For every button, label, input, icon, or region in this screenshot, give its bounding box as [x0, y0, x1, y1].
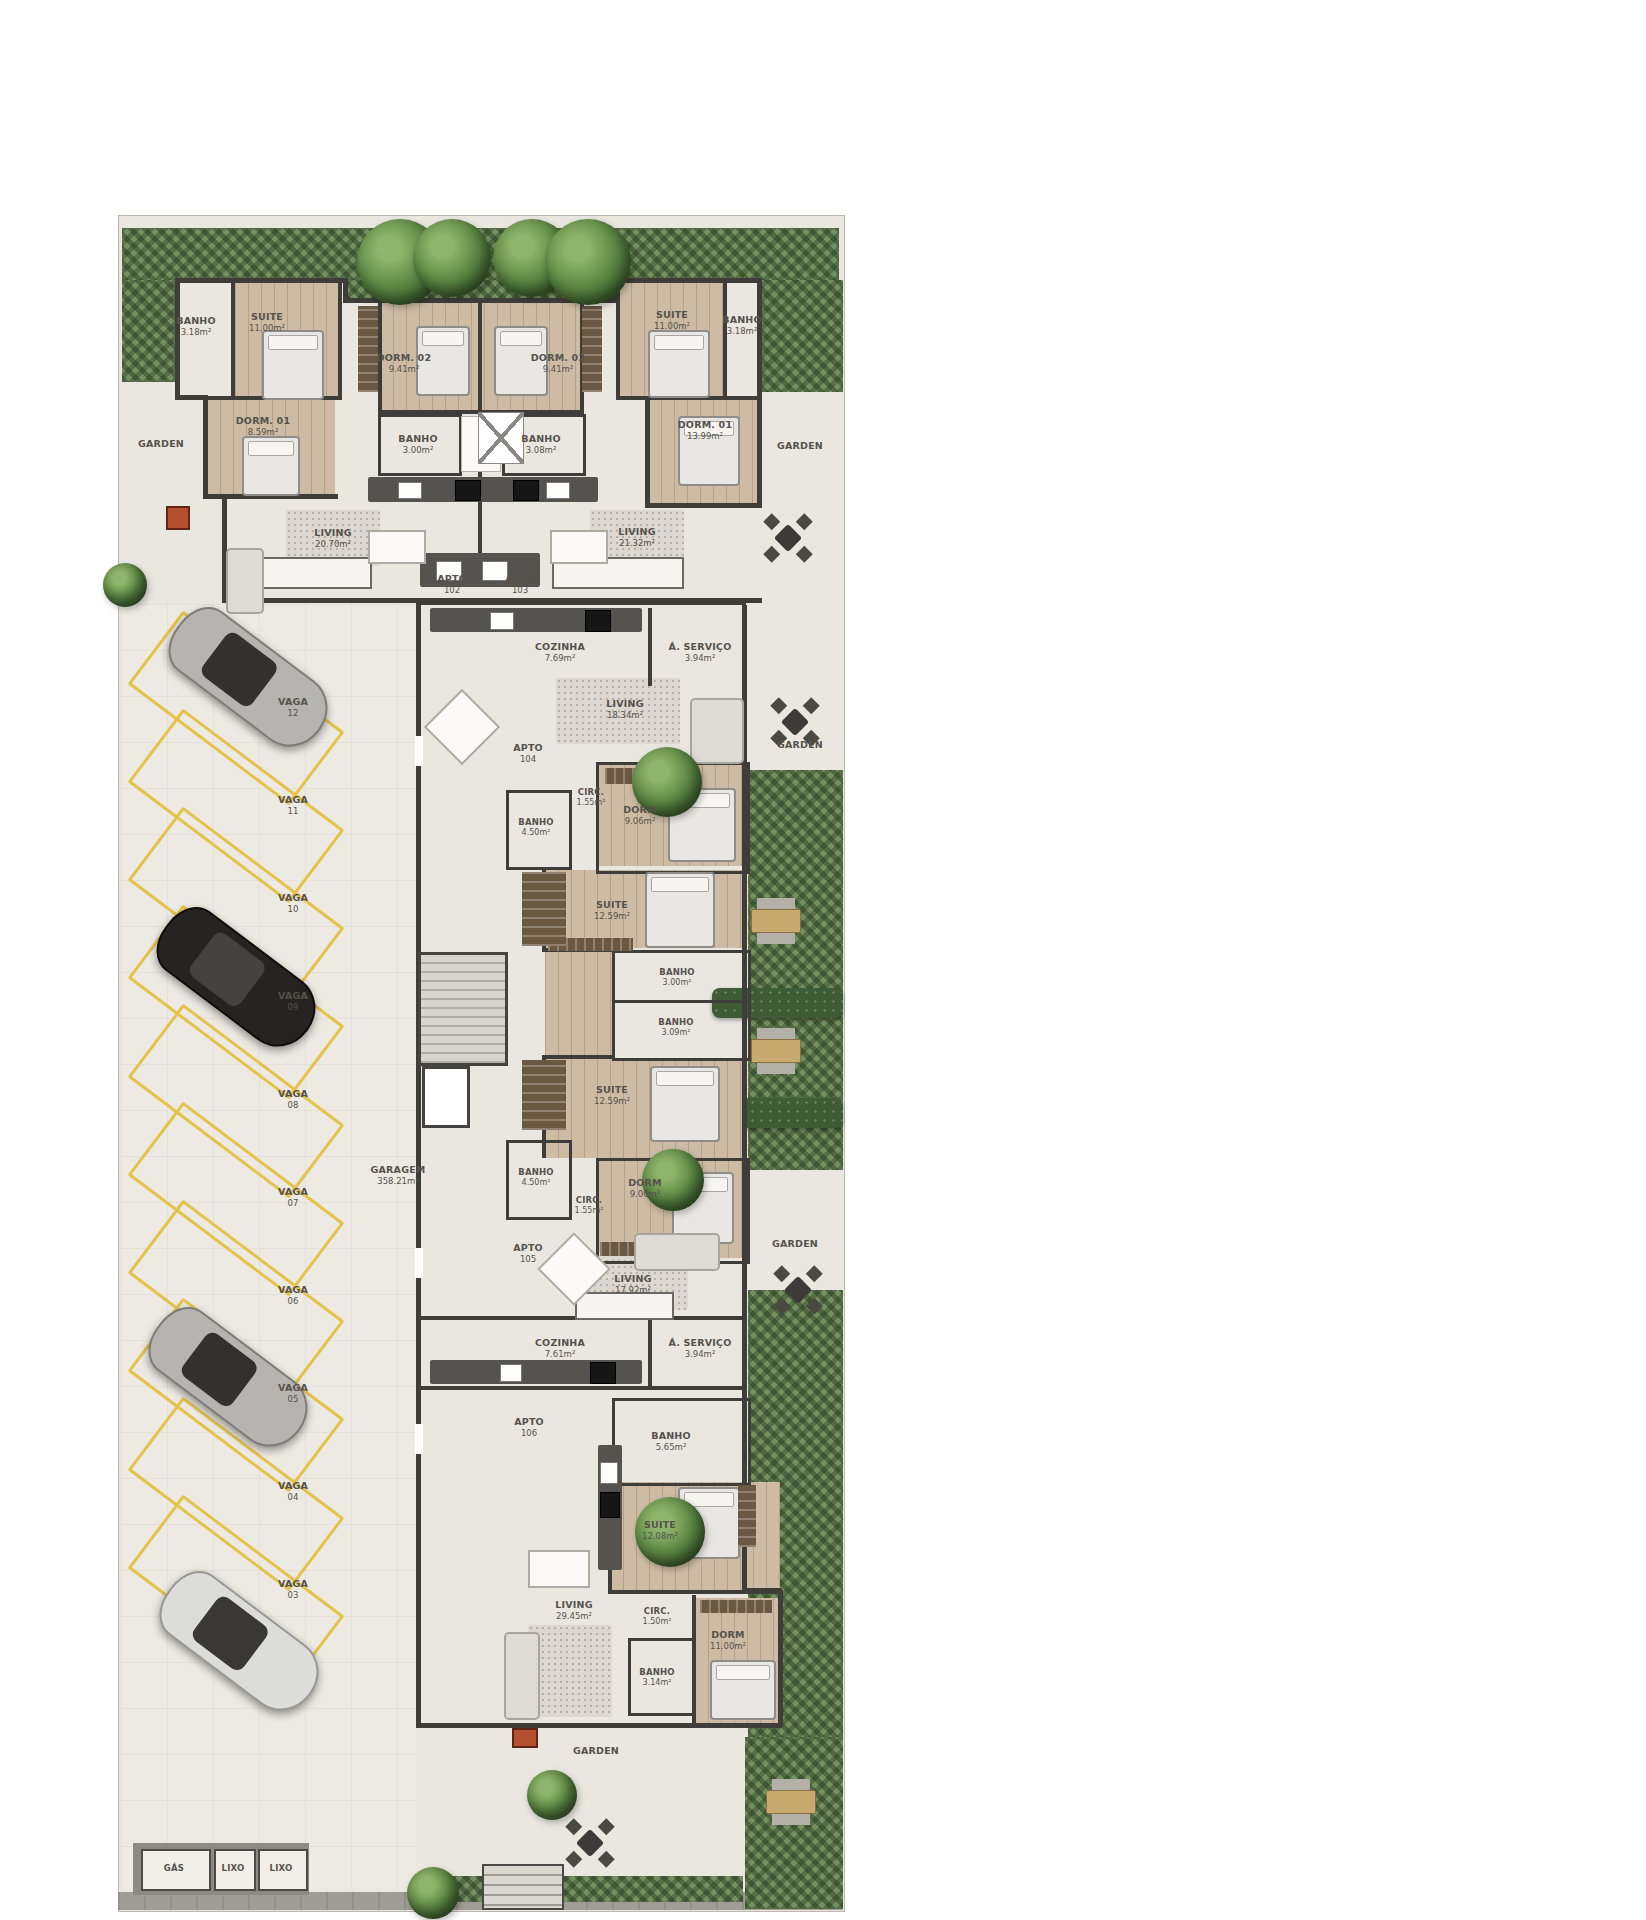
vaga-number: 07 [278, 1198, 308, 1209]
room-name: BANHO [659, 967, 695, 978]
room-name: SUITE [249, 311, 285, 323]
lixo-label-1: LIXO [222, 1863, 245, 1874]
room-name: BANHO [176, 315, 216, 327]
wall [612, 1000, 745, 1003]
vaga-label-10: VAGA10 [278, 892, 308, 915]
dining-table-106 [528, 1550, 590, 1588]
room-area: 11.00m² [654, 321, 690, 332]
room-area: 13.99m² [678, 431, 732, 442]
staircase [418, 952, 508, 1066]
floor-suite-104b [545, 948, 612, 1055]
room-name: DORM. 02 [377, 352, 431, 364]
tree [103, 563, 147, 607]
wall [723, 278, 727, 398]
apto-number: 104 [513, 754, 543, 765]
elevator-shaft [422, 1066, 470, 1128]
room-label-circ-106: CIRC.1.50m² [643, 1606, 672, 1627]
room-label-banho2-105: BANHO3.09m² [658, 1017, 694, 1038]
room-label-suite-103: SUITE11.00m² [654, 309, 690, 332]
room-area: 3.94m² [668, 1349, 731, 1360]
room-name: LIVING [555, 1599, 592, 1611]
room-label-banho-104: BANHO4.50m² [518, 817, 554, 838]
vaga-name: VAGA [278, 990, 308, 1002]
room-name: LIVING [314, 527, 351, 539]
apto-number: 103 [505, 585, 535, 596]
garden-bottom-strip [430, 1876, 743, 1902]
room-label-living-102: LIVING20.70m² [314, 527, 351, 550]
room-label-suite-105: SUITE12.59m² [594, 1084, 630, 1107]
wall [478, 302, 482, 414]
wall [616, 278, 620, 398]
sink [600, 1462, 618, 1484]
apto-number: 102 [437, 585, 467, 596]
garden-name: GARDEN [138, 438, 184, 450]
vaga-number: 10 [278, 904, 308, 915]
room-area: 3.18m² [176, 327, 216, 338]
vaga-name: VAGA [278, 696, 308, 708]
sofa-106 [504, 1632, 540, 1720]
room-area: 7.69m² [535, 653, 585, 664]
utility-name: LIXO [270, 1863, 293, 1874]
vaga-label-05: VAGA05 [278, 1382, 308, 1405]
bed-suite-104 [645, 872, 715, 948]
utility-name: LIXO [222, 1863, 245, 1874]
vaga-label-04: VAGA04 [278, 1480, 308, 1503]
room-label-servico-105: Á. SERVIÇO3.94m² [668, 1337, 731, 1360]
room-label-cozinha-105: COZINHA7.61m² [535, 1337, 585, 1360]
room-name: LIVING [614, 1273, 651, 1285]
room-area: 3.00m² [659, 977, 695, 987]
bed-dorm1-102 [242, 436, 300, 496]
apto-number: 105 [513, 1254, 543, 1265]
vaga-name: VAGA [278, 794, 308, 806]
room-label-dorm1-103: DORM. 0113.99m² [678, 419, 732, 442]
room-label-dorm-106: DORM11.00m² [710, 1629, 746, 1652]
wardrobe [700, 1600, 772, 1613]
room-name: SUITE [594, 1084, 630, 1096]
wardrobe [582, 306, 602, 392]
garden-name: GARDEN [777, 440, 823, 452]
sofa-104 [690, 698, 744, 764]
room-area: 7.61m² [535, 1349, 585, 1360]
room-name: SUITE [642, 1519, 678, 1531]
room-name: SUITE [654, 309, 690, 321]
room-name: BANHO [722, 314, 762, 326]
wall [645, 503, 762, 508]
room-label-banho2-104: BANHO3.00m² [659, 967, 695, 988]
tree [527, 1770, 577, 1820]
room-name: BANHO [398, 433, 438, 445]
vaga-label-12: VAGA12 [278, 696, 308, 719]
bed-suite-102 [262, 330, 324, 400]
room-label-banho2-106: BANHO3.14m² [639, 1667, 675, 1688]
room-label-circ-104: CIRC.1.55m² [577, 787, 606, 808]
room-label-suite-106: SUITE12.08m² [642, 1519, 678, 1542]
tree [407, 1867, 459, 1919]
apto-label-103: APTO103 [505, 573, 535, 596]
closet [522, 1060, 566, 1130]
garden-top-left [122, 280, 177, 382]
utility-box [512, 1728, 538, 1748]
room-area: 17.92m² [614, 1285, 651, 1296]
utility-box [166, 506, 190, 530]
room-area: 4.50m² [518, 827, 554, 837]
wall [338, 278, 342, 398]
vaga-label-06: VAGA06 [278, 1284, 308, 1307]
wall [203, 398, 208, 498]
room-label-dorm-104: DORM9.06m² [623, 804, 657, 827]
sofa-105 [634, 1233, 720, 1271]
wall [614, 278, 762, 283]
room-area: 3.14m² [639, 1677, 675, 1687]
room-area: 29.45m² [555, 1611, 592, 1622]
room-name: BANHO [658, 1017, 694, 1028]
apto-name: APTO [505, 573, 535, 585]
wardrobe [738, 1485, 756, 1547]
picnic-table [766, 1790, 816, 1814]
room-area: 20.70m² [314, 539, 351, 550]
utility-name: GÁS [164, 1863, 184, 1874]
gas-label: GÁS [164, 1863, 184, 1874]
apto-name: APTO [437, 573, 467, 585]
dining-table-102 [368, 530, 426, 564]
sofa-102 [226, 548, 264, 614]
sink [500, 1364, 522, 1382]
apto-number: 106 [514, 1428, 544, 1439]
room-name: BANHO [518, 1167, 554, 1178]
room-label-living-103: LIVING21.32m² [618, 526, 655, 549]
room-label-banho-102: BANHO3.00m² [398, 433, 438, 456]
apto-name: APTO [513, 1242, 543, 1254]
room-label-living-105: LIVING17.92m² [614, 1273, 651, 1296]
rug-living-106 [528, 1625, 612, 1717]
room-name: Á. SERVIÇO [668, 1337, 731, 1349]
garden-name: GARDEN [573, 1745, 619, 1757]
apto-label-102: APTO102 [437, 573, 467, 596]
garden-name: GARDEN [772, 1238, 818, 1250]
room-label-banho-106: BANHO5.65m² [651, 1430, 691, 1453]
room-label-living-104: LIVING18.34m² [606, 698, 643, 721]
wall [416, 600, 746, 605]
room-label-circ-105: CIRC.1.55m² [575, 1195, 604, 1216]
wardrobe [358, 306, 378, 392]
picnic-table [751, 909, 801, 933]
wall [175, 278, 180, 400]
room-area: 12.59m² [594, 911, 630, 922]
room-name: BANHO [639, 1667, 675, 1678]
garden-name: GARDEN [777, 739, 823, 751]
garage-name: GARAGEM [371, 1164, 426, 1176]
room-name: BANHO [521, 433, 561, 445]
floor-plan: BANHO3.18m² SUITE11.00m² DORM. 029.41m² … [0, 0, 1646, 1920]
room-area: 1.55m² [575, 1205, 604, 1215]
room-name: DORM. 01 [236, 415, 290, 427]
entry-double-door [478, 412, 524, 464]
vaga-number: 09 [278, 1002, 308, 1013]
room-label-banho-105: BANHO4.50m² [518, 1167, 554, 1188]
room-label-living-106: LIVING29.45m² [555, 1599, 592, 1622]
room-area: 9.06m² [623, 816, 657, 827]
room-area: 9.41m² [531, 364, 585, 375]
room-name: BANHO [518, 817, 554, 828]
vaga-number: 12 [278, 708, 308, 719]
room-label-suite-102: SUITE11.00m² [249, 311, 285, 334]
room-label-servico-104: Á. SERVIÇO3.94m² [668, 641, 731, 664]
vaga-name: VAGA [278, 1088, 308, 1100]
tree [413, 219, 491, 297]
room-area: 3.00m² [398, 445, 438, 456]
room-name: DORM. 02 [531, 352, 585, 364]
garden-bottom-right [745, 1737, 843, 1909]
apto-label-104: APTO104 [513, 742, 543, 765]
wall [645, 398, 650, 508]
room-area: 12.08m² [642, 1531, 678, 1542]
room-name: SUITE [594, 899, 630, 911]
room-area: 8.59m² [236, 427, 290, 438]
bed-suite-105 [650, 1066, 720, 1142]
room-label-banho-suite-103: BANHO3.18m² [722, 314, 762, 337]
vaga-number: 06 [278, 1296, 308, 1307]
room-name: DORM [623, 804, 657, 816]
room-area: 9.41m² [377, 364, 431, 375]
garden-top-right [762, 280, 843, 392]
vaga-number: 08 [278, 1100, 308, 1111]
vaga-name: VAGA [278, 1186, 308, 1198]
wall [648, 608, 652, 686]
closet [522, 872, 566, 946]
room-area: 1.55m² [577, 797, 606, 807]
wall [648, 1320, 652, 1386]
vaga-label-07: VAGA07 [278, 1186, 308, 1209]
room-area: 3.09m² [658, 1027, 694, 1037]
vaga-name: VAGA [278, 1284, 308, 1296]
wall [757, 278, 762, 508]
garden-label-bottom: GARDEN [573, 1745, 619, 1757]
apto-name: APTO [514, 1416, 544, 1428]
room-label-dorm1-102: DORM. 018.59m² [236, 415, 290, 438]
wall [608, 1590, 782, 1594]
vaga-label-09: VAGA09 [278, 990, 308, 1013]
cooktop [455, 480, 481, 501]
island-105 [575, 1292, 674, 1320]
vaga-label-03: VAGA03 [278, 1578, 308, 1601]
room-area: 12.59m² [594, 1096, 630, 1107]
garage-label: GARAGEM358.21m² [371, 1164, 426, 1187]
room-area: 1.50m² [643, 1616, 672, 1626]
apto-label-105: APTO105 [513, 1242, 543, 1265]
wall [778, 1590, 783, 1725]
room-name: CIRC. [577, 787, 606, 798]
room-name: LIVING [618, 526, 655, 538]
vaga-name: VAGA [278, 1382, 308, 1394]
vaga-number: 11 [278, 806, 308, 817]
room-name: Á. SERVIÇO [668, 641, 731, 653]
room-area: 3.94m² [668, 653, 731, 664]
room-area: 21.32m² [618, 538, 655, 549]
room-area: 4.50m² [518, 1177, 554, 1187]
lixo-label-2: LIXO [270, 1863, 293, 1874]
room-name: CIRC. [643, 1606, 672, 1617]
room-label-banho-suite-102: BANHO3.18m² [176, 315, 216, 338]
picnic-table [751, 1039, 801, 1063]
room-name: DORM. 01 [678, 419, 732, 431]
vaga-label-11: VAGA11 [278, 794, 308, 817]
room-label-cozinha-104: COZINHA7.69m² [535, 641, 585, 664]
room-area: 5.65m² [651, 1442, 691, 1453]
door-gap-104 [415, 736, 423, 766]
room-label-dorm-105: DORM9.00m² [628, 1177, 662, 1200]
room-name: DORM [710, 1629, 746, 1641]
dining-table-103 [550, 530, 608, 564]
wall [420, 1386, 745, 1390]
sink [482, 561, 508, 581]
room-label-banho-103: BANHO3.08m² [521, 433, 561, 456]
sink [546, 482, 570, 499]
apto-label-106: APTO106 [514, 1416, 544, 1439]
wall [231, 278, 235, 398]
garage-area: 358.21m² [371, 1176, 426, 1187]
vaga-number: 03 [278, 1590, 308, 1601]
garden-label-mid: GARDEN [777, 739, 823, 751]
wall [542, 1055, 614, 1059]
room-name: LIVING [606, 698, 643, 710]
room-name: DORM [628, 1177, 662, 1189]
vaga-label-08: VAGA08 [278, 1088, 308, 1111]
bed-suite-103 [648, 330, 710, 398]
wall [175, 278, 347, 283]
room-name: COZINHA [535, 1337, 585, 1349]
door-gap-106 [415, 1424, 423, 1454]
door-gap-105 [415, 1248, 423, 1278]
wall [343, 278, 348, 303]
room-area: 9.00m² [628, 1189, 662, 1200]
apto-name: APTO [513, 742, 543, 754]
cooktop [590, 1362, 616, 1384]
cooktop [600, 1492, 620, 1518]
room-area: 18.34m² [606, 710, 643, 721]
garden-label-right: GARDEN [777, 440, 823, 452]
bed-dorm-106 [710, 1660, 776, 1720]
cooktop [513, 480, 539, 501]
room-name: COZINHA [535, 641, 585, 653]
vaga-number: 05 [278, 1394, 308, 1405]
wall [742, 605, 747, 1170]
wall [420, 1723, 782, 1728]
room-label-suite-104: SUITE12.59m² [594, 899, 630, 922]
vaga-name: VAGA [278, 1480, 308, 1492]
sink [398, 482, 422, 499]
vaga-number: 04 [278, 1492, 308, 1503]
room-name: BANHO [651, 1430, 691, 1442]
room-label-dorm2-103: DORM. 029.41m² [531, 352, 585, 375]
sink [490, 612, 514, 630]
garden-label-lower: GARDEN [772, 1238, 818, 1250]
room-area: 11.00m² [710, 1641, 746, 1652]
vaga-name: VAGA [278, 892, 308, 904]
wall [692, 1595, 696, 1725]
tree [545, 219, 631, 305]
entry-steps [482, 1864, 564, 1910]
garden-label-left: GARDEN [138, 438, 184, 450]
room-area: 3.18m² [722, 326, 762, 337]
room-label-dorm2-102: DORM. 029.41m² [377, 352, 431, 375]
room-area: 3.08m² [521, 445, 561, 456]
room-name: CIRC. [575, 1195, 604, 1206]
room-area: 11.00m² [249, 323, 285, 334]
cooktop [585, 610, 611, 632]
vaga-name: VAGA [278, 1578, 308, 1590]
